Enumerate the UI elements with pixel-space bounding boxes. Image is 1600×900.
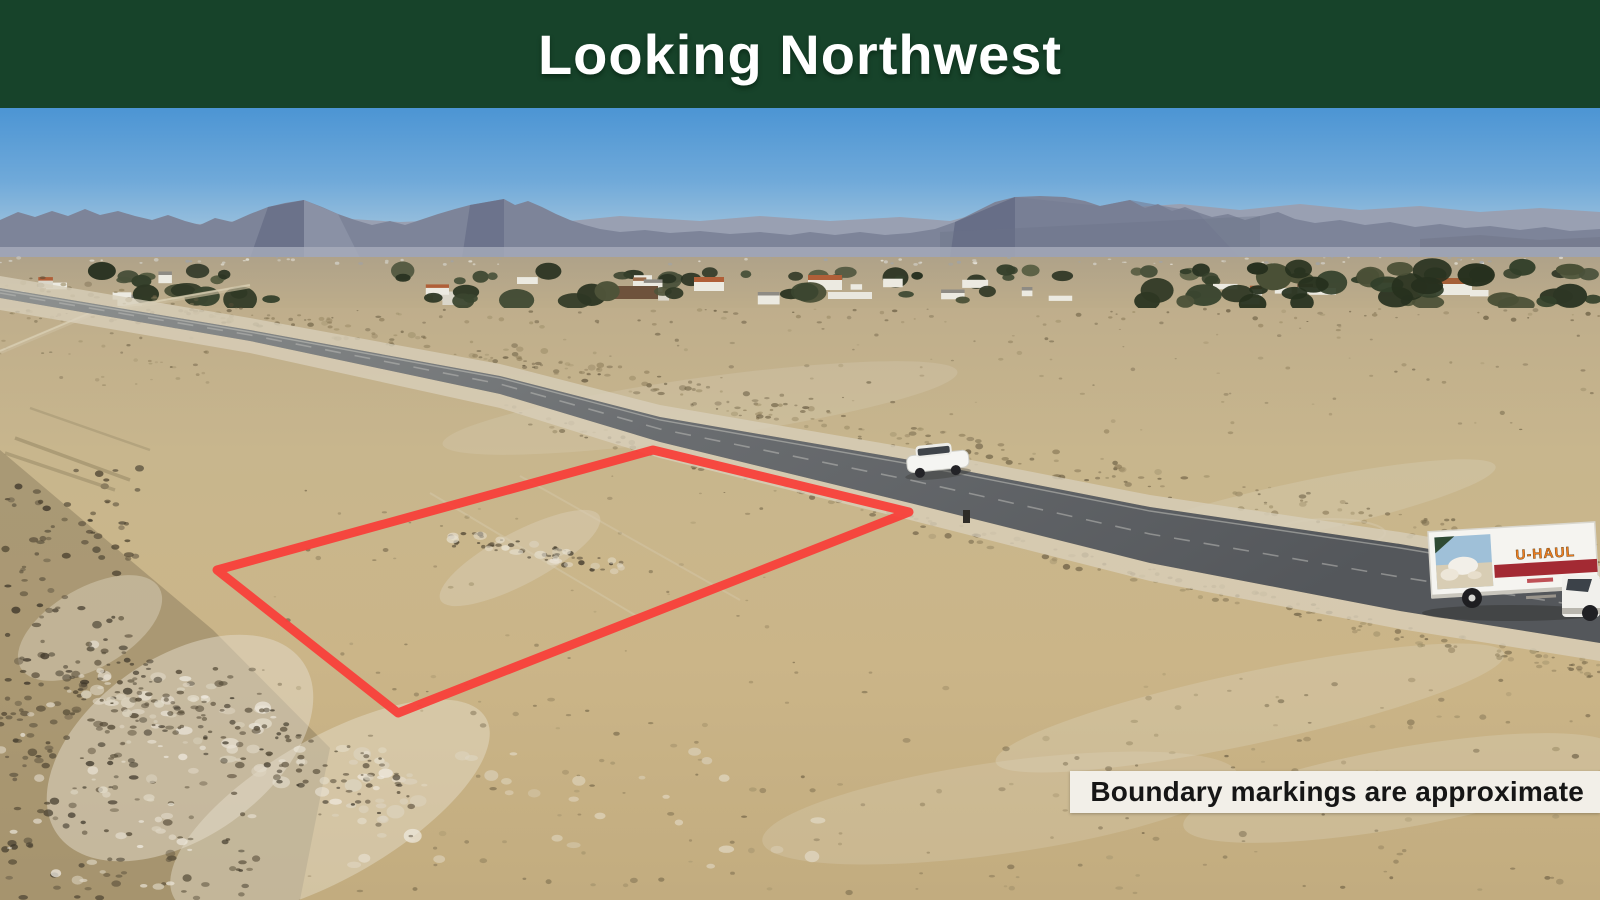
roadside-post xyxy=(963,510,970,523)
truck-wheel xyxy=(1582,605,1598,621)
red-tile-roof xyxy=(808,275,842,280)
truck-windshield xyxy=(1566,579,1592,592)
truck-wheel-hub xyxy=(1469,595,1476,602)
truck-side-graphic xyxy=(1434,534,1493,589)
boundary-note: Boundary markings are approximate xyxy=(1070,771,1600,813)
red-tile-roof xyxy=(694,277,724,282)
screenshot-root: Looking Northwest xyxy=(0,0,1600,900)
house xyxy=(694,282,724,291)
header-banner: Looking Northwest xyxy=(0,0,1600,108)
aerial-photo: U-HAUL Boundary markings are approximate xyxy=(0,108,1600,900)
white-fence xyxy=(828,292,872,299)
page-title: Looking Northwest xyxy=(538,22,1062,87)
